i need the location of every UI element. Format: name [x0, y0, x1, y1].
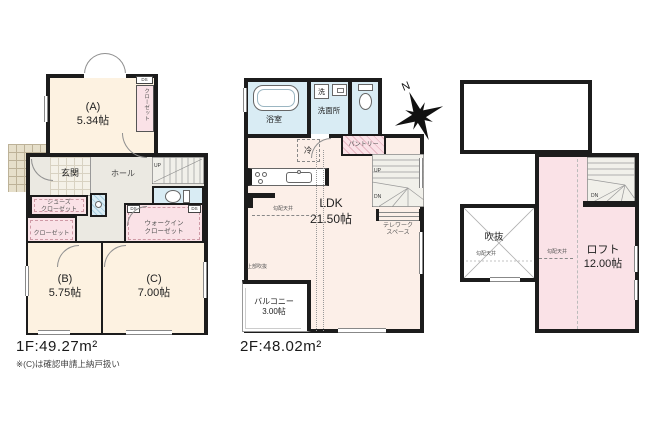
loft-roof-room	[460, 80, 592, 154]
washroom-label: 洗面所	[310, 106, 348, 116]
floor2-area-title: 2F:48.02m²	[240, 338, 322, 355]
stove-burner-icon	[255, 172, 260, 177]
washing-machine-icon: 洗	[314, 84, 329, 99]
shoes-closet-label: シューズ クローゼット	[32, 200, 86, 214]
room-b-window-bottom	[38, 330, 70, 335]
stove-burner-icon	[262, 172, 267, 177]
ldk-window-bottom	[338, 328, 386, 333]
balcony: バルコニー 3.00帖	[242, 280, 311, 332]
bathroom-label: 浴室	[252, 115, 296, 125]
washbasin-1f	[90, 193, 107, 217]
balcony-label: バルコニー 3.00帖	[245, 297, 303, 318]
void-above: 吹抜 勾配天井	[460, 204, 538, 282]
loft-window-right-upper	[634, 246, 638, 272]
room-a-label: (A) 5.34帖	[54, 100, 132, 129]
stairs-1f-up-label: UP	[154, 163, 162, 169]
washing-machine-label: 洗	[315, 88, 328, 97]
kitchen-faucet-icon	[297, 170, 301, 174]
shoes-closet: シューズ クローゼット	[30, 195, 88, 216]
closet-room-a-label: クローゼット	[142, 88, 149, 121]
kitchen-wall-stub-v	[248, 193, 253, 208]
ldk-window-right-upper	[419, 158, 423, 188]
ldk-label: LDK 21.50帖	[302, 196, 360, 227]
void-label: 吹抜	[474, 232, 514, 244]
room-a-double-door-arc-left	[84, 53, 105, 74]
room-a-window	[44, 96, 48, 122]
duct-space-badge: DS	[136, 76, 153, 84]
loft-window-right-lower	[634, 280, 638, 300]
floor-plan-canvas: (A) 5.34帖 DS クローゼット 玄関 ホール UP シューズ クローゼッ…	[0, 0, 650, 430]
toilet-2f-tank-icon	[358, 84, 373, 91]
genkan-label: 玄関	[52, 168, 88, 180]
loft-label: ロフト 12.00帖	[572, 243, 634, 272]
north-label: N	[400, 80, 412, 94]
room-a-door-opening	[84, 73, 126, 78]
hall-label: ホール	[100, 169, 146, 179]
bathroom-window	[243, 88, 247, 112]
room-c-window-bottom	[126, 330, 172, 335]
sloped-ceiling-loft-line	[539, 258, 573, 259]
ldk-window-right-lower	[419, 232, 423, 274]
washbasin-1f-bowl-icon	[95, 201, 102, 208]
stairs-2f-dn-label: DN	[374, 194, 382, 200]
floor1-note: ※(C)は確認申請上納戸扱い	[16, 358, 120, 370]
room-c-window-right	[203, 262, 207, 298]
toilet-1f-bowl-icon	[165, 190, 181, 203]
open-above-label: 上部吹抜	[247, 265, 279, 271]
bathtub-icon	[253, 85, 299, 111]
stairs-loft-dn-label: DN	[591, 193, 599, 199]
closet-room-a: クローゼット	[136, 85, 154, 132]
stairs-2f-up-label: UP	[374, 168, 382, 174]
room-c-label: (C) 7.00帖	[112, 272, 196, 301]
sloped-ceiling-2f-line	[252, 215, 314, 216]
north-compass: N	[390, 78, 444, 142]
washbasin-2f-icon	[332, 84, 347, 96]
sloped-ceiling-loft-label: 勾配天井	[539, 250, 575, 256]
duct-space-badge-wic-right: DS	[188, 205, 201, 213]
stairs-2f: UP DN	[372, 154, 424, 207]
telework-label: テレワーク スペース	[372, 223, 424, 237]
void-window-bottom	[490, 277, 520, 282]
closet-1f-label: クローゼット	[28, 231, 75, 239]
washroom-2f: 洗 洗面所	[307, 78, 352, 138]
room-b-window-left	[25, 266, 29, 296]
room-a-double-door-arc-right	[105, 53, 126, 74]
pantry: パントリー	[341, 134, 386, 156]
sloped-ceiling-void-label: 勾配天井	[468, 252, 504, 258]
pantry-label: パントリー	[343, 142, 384, 150]
bathroom-2f: 浴室	[244, 78, 311, 138]
toilet-2f	[348, 78, 382, 138]
room-b-label: (B) 5.75帖	[30, 272, 100, 301]
sloped-ceiling-2f-label: 勾配天井	[258, 207, 308, 213]
toilet-1f-tank-icon	[183, 190, 190, 203]
stairs-1f: UP	[152, 157, 204, 184]
loft-stairs-wall-stub	[583, 201, 639, 207]
floor1-area-title: 1F:49.27m²	[16, 338, 98, 355]
toilet-2f-bowl-icon	[359, 93, 372, 110]
closet-1f: クローゼット	[26, 216, 77, 244]
ridge-line-2f-b	[323, 150, 324, 331]
telework-desk	[376, 209, 422, 221]
stove-burner-icon	[258, 179, 263, 184]
ridge-line-2f-a	[316, 150, 317, 331]
stairs-loft: DN	[587, 157, 635, 203]
